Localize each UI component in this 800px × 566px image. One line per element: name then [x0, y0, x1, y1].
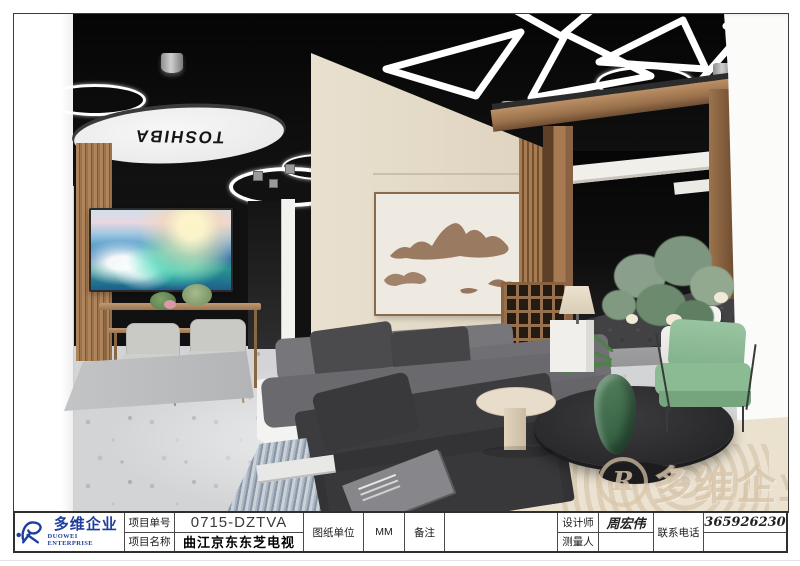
unit-value-cell: MM	[363, 513, 404, 551]
panel-seam	[373, 173, 523, 175]
logo-english-name: DUOWEI ENTERPRISE	[48, 533, 125, 547]
designer-value: 周宏伟	[599, 513, 653, 533]
lamp-stem	[576, 314, 579, 324]
side-table-column	[504, 408, 526, 450]
watermark: R 多维企业	[598, 454, 789, 510]
phone-value-column: 13659262305	[703, 513, 786, 551]
remarks-value	[445, 513, 557, 551]
tv-screen-ocean-art	[89, 208, 233, 292]
surveyor-value	[599, 533, 653, 552]
project-name-value: 曲江京东东芝电视	[175, 533, 303, 552]
door-trim	[281, 199, 295, 349]
downlight-icon	[161, 53, 183, 73]
remarks-label: 备注	[405, 513, 444, 551]
designer-label: 设计师	[558, 513, 598, 533]
phone-label-cell: 联系电话	[653, 513, 703, 551]
side-table-shadow	[482, 446, 554, 458]
unit-label-cell: 图纸单位	[303, 513, 363, 551]
designer-label-column: 设计师 测量人	[557, 513, 598, 551]
white-flower	[714, 292, 728, 303]
console-table	[99, 303, 261, 310]
armchair-leg	[742, 406, 744, 432]
armchair-front	[659, 391, 751, 407]
phone-value: 13659262305	[704, 513, 786, 533]
unit-value: MM	[364, 513, 404, 551]
armchair-leg	[666, 406, 668, 432]
table-leg	[254, 310, 257, 388]
toshiba-logo-text: TOSHIBA	[132, 125, 225, 147]
project-label-column: 项目单号 项目名称	[124, 513, 174, 551]
table-plant	[182, 284, 212, 306]
white-flower	[626, 314, 638, 324]
title-block: 多维企业 DUOWEI ENTERPRISE 项目单号 项目名称 0715-DZ…	[13, 511, 788, 553]
duowei-logo-icon	[15, 516, 45, 548]
phone-label: 联系电话	[654, 513, 703, 551]
project-no-value: 0715-DZTVA	[175, 513, 303, 533]
table-flowers	[164, 300, 176, 309]
project-no-label: 项目单号	[125, 513, 174, 533]
phone-value-empty	[704, 533, 786, 552]
project-name-label: 项目名称	[125, 533, 174, 552]
designer-value-column: 周宏伟	[598, 513, 653, 551]
white-lamp-table	[550, 320, 594, 372]
logo-chinese-name: 多维企业	[54, 517, 118, 533]
surveyor-label: 测量人	[558, 533, 598, 552]
watermark-logo-icon: R	[598, 457, 648, 507]
doorway-opening	[248, 201, 281, 349]
interior-render: TOSHIBA	[13, 13, 789, 513]
remarks-value-cell	[444, 513, 557, 551]
dining-chair	[190, 319, 246, 355]
watermark-text: 多维企业	[652, 453, 789, 511]
company-logo: 多维企业 DUOWEI ENTERPRISE	[15, 513, 124, 551]
remarks-label-cell: 备注	[404, 513, 444, 551]
project-value-column: 0715-DZTVA 曲江京东东芝电视	[174, 513, 303, 551]
unit-label: 图纸单位	[304, 513, 363, 551]
book-cover-text-lines	[358, 474, 396, 490]
sheet-bottom-line	[0, 560, 800, 561]
